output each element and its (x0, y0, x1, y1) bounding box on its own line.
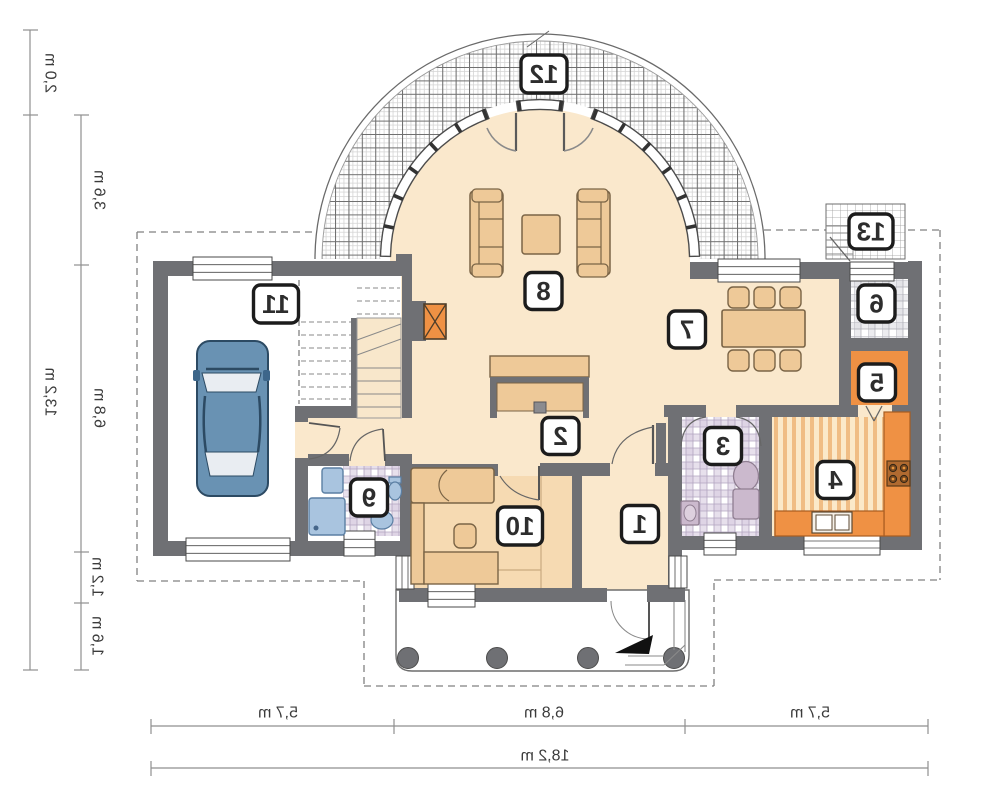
svg-text:13,2 m: 13,2 m (41, 368, 58, 417)
svg-text:1: 1 (633, 509, 647, 539)
svg-text:5,7 m: 5,7 m (258, 705, 298, 722)
svg-text:5,7 m: 5,7 m (790, 705, 830, 722)
svg-text:7: 7 (680, 315, 694, 345)
svg-text:2: 2 (553, 421, 567, 451)
svg-text:2,0 m: 2,0 m (41, 53, 58, 93)
svg-text:6,8 m: 6,8 m (90, 388, 107, 428)
svg-text:6,8 m: 6,8 m (524, 705, 564, 722)
svg-text:1,6 m: 1,6 m (88, 616, 105, 656)
svg-text:4: 4 (828, 465, 843, 495)
svg-text:3,6 m: 3,6 m (90, 170, 107, 210)
svg-text:13: 13 (857, 217, 886, 247)
svg-text:12: 12 (530, 59, 559, 89)
svg-text:5: 5 (870, 368, 884, 398)
svg-text:11: 11 (262, 289, 290, 319)
svg-text:1,2 m: 1,2 m (88, 557, 105, 597)
svg-text:9: 9 (362, 483, 376, 513)
svg-text:8: 8 (536, 276, 550, 306)
svg-text:3: 3 (716, 431, 730, 461)
svg-text:10: 10 (506, 511, 535, 541)
svg-text:18,2 m: 18,2 m (521, 748, 570, 765)
svg-text:6: 6 (869, 289, 883, 319)
